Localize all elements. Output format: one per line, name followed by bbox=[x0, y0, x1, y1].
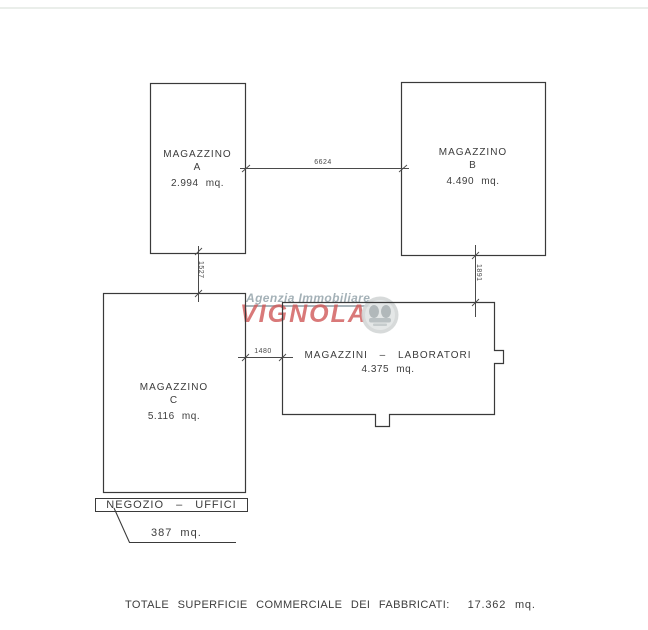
building-lab-label: MAGAZZINI – LABORATORI 4.375 mq. bbox=[282, 349, 494, 375]
building-c-area: 5.116 mq. bbox=[103, 411, 245, 422]
building-a-name: MAGAZZINO bbox=[150, 148, 245, 161]
negozio-uffici-box: NEGOZIO – UFFICI bbox=[95, 498, 248, 512]
dim-label-1480: 1480 bbox=[240, 348, 286, 355]
building-b-area: 4.490 mq. bbox=[401, 176, 545, 187]
building-a-area: 2.994 mq. bbox=[150, 178, 245, 189]
building-lab-area: 4.375 mq. bbox=[282, 364, 494, 375]
plan-linework bbox=[0, 0, 648, 630]
shop-area-label: 387 mq. bbox=[151, 527, 202, 539]
building-b-letter: B bbox=[401, 159, 545, 172]
total-surface-line: TOTALE SUPERFICIE COMMERCIALE DEI FABBRI… bbox=[125, 599, 536, 611]
total-surface-value: 17.362 mq. bbox=[468, 599, 536, 611]
dim-label-6624: 6624 bbox=[300, 159, 346, 166]
building-a-label: MAGAZZINO A 2.994 mq. bbox=[150, 148, 245, 189]
building-a-letter: A bbox=[150, 161, 245, 174]
building-b-name: MAGAZZINO bbox=[401, 146, 545, 159]
total-surface-label: TOTALE SUPERFICIE COMMERCIALE DEI FABBRI… bbox=[125, 599, 450, 611]
building-c-name: MAGAZZINO bbox=[103, 381, 245, 394]
negozio-uffici-label: NEGOZIO – UFFICI bbox=[106, 499, 236, 511]
building-b-label: MAGAZZINO B 4.490 mq. bbox=[401, 146, 545, 187]
dim-ticks bbox=[195, 165, 479, 361]
dim-label-1527: 1527 bbox=[197, 261, 204, 301]
dim-label-1891: 1891 bbox=[475, 264, 482, 304]
building-c-label: MAGAZZINO C 5.116 mq. bbox=[103, 381, 245, 422]
building-lab-name: MAGAZZINI – LABORATORI bbox=[282, 349, 494, 362]
building-c-letter: C bbox=[103, 394, 245, 407]
floor-plan-page: Agenzia Immobiliare VIGNOLA bbox=[0, 0, 648, 630]
